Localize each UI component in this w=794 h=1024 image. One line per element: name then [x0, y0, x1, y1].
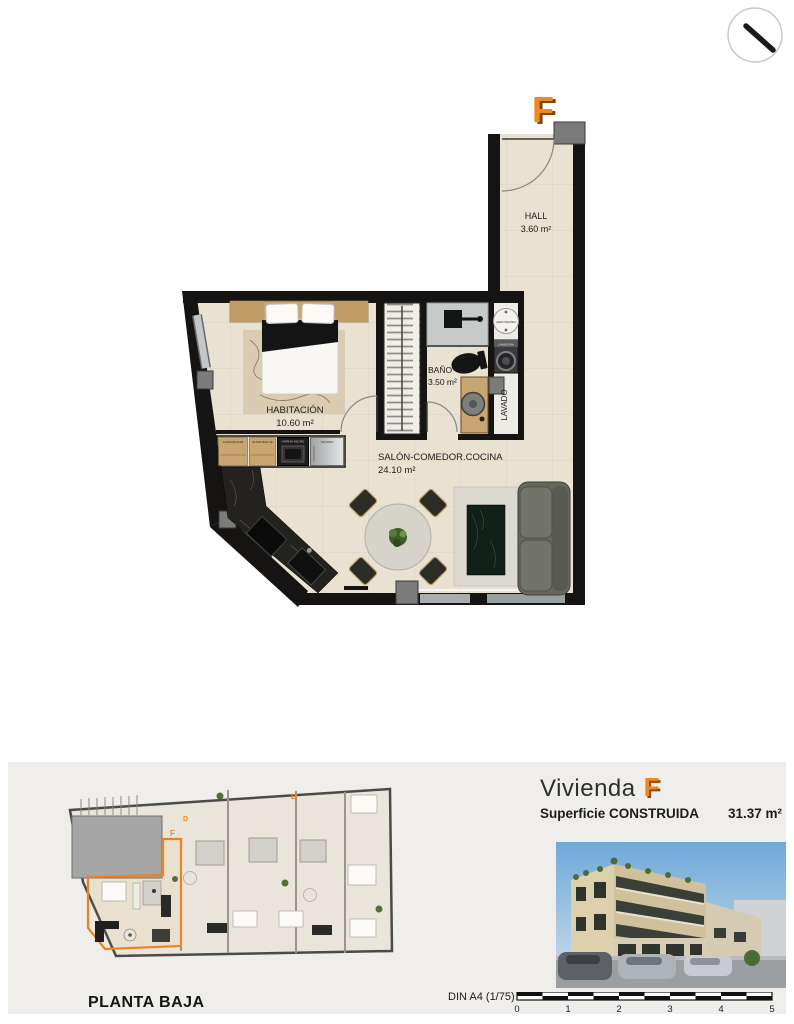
- surface-row: Superficie CONSTRUIDA 31.37 m²: [540, 806, 782, 821]
- site-letter-e: E: [291, 794, 296, 801]
- cabinet-label-1: ALMACENAJE: [223, 440, 244, 444]
- pillow: [266, 303, 299, 323]
- building-photo: [556, 842, 786, 988]
- hall-area: 3.60 m²: [521, 224, 552, 234]
- scale-tick-3: 3: [667, 1004, 672, 1015]
- floor-plan: F F: [0, 0, 794, 760]
- pillow: [302, 303, 335, 323]
- cabinet-label-2: ALMACENAJE: [252, 440, 273, 444]
- scale-tick-4: 4: [718, 1004, 723, 1015]
- hall-name: HALL: [525, 211, 548, 221]
- washer-label: LAVADORA: [498, 342, 514, 346]
- vanity: [461, 377, 488, 433]
- patio: [72, 816, 162, 878]
- unit-badge-letter: F: [532, 89, 554, 130]
- floor-plan-sheet: F F: [0, 0, 794, 760]
- fridge-label: NEVERA: [321, 440, 335, 444]
- bedroom-area: 10.60 m²: [276, 418, 314, 429]
- window-south-1: [420, 594, 470, 603]
- site-plan-title: PLANTA BAJA: [88, 994, 205, 1012]
- scale-bar-segments: [517, 992, 772, 1000]
- scale-tick-0: 0: [514, 1004, 519, 1015]
- dwelling-title: ViviendaF: [540, 772, 660, 803]
- surface-label: Superficie CONSTRUIDA: [540, 806, 699, 821]
- scale-ticks: 0 1 2 3 4 5: [514, 1004, 774, 1015]
- wardrobe: [384, 303, 420, 434]
- living-name: SALÓN-COMEDOR.COCINA: [378, 452, 503, 463]
- dwelling-label: Vivienda: [540, 775, 636, 802]
- scale-tick-2: 2: [616, 1004, 621, 1015]
- scale-bar: 0 1 2 3 4 5: [511, 992, 781, 1018]
- site-letter-f: F: [170, 829, 175, 838]
- dwelling-unit-letter: F: [644, 772, 660, 802]
- laundry-label: LAVADO: [500, 389, 509, 420]
- living-area: 24.10 m²: [378, 465, 416, 476]
- sofa: [518, 482, 570, 595]
- bath-area: 3.50 m²: [428, 377, 457, 387]
- surface-value: 31.37 m²: [728, 806, 782, 821]
- summary-panel: F D E PLANTA BAJA ViviendaF Superficie C…: [8, 762, 786, 1014]
- north-compass-icon: [728, 8, 782, 62]
- coffee-table: [467, 505, 505, 575]
- scale-tick-5: 5: [769, 1004, 774, 1015]
- site-plan: F D E: [57, 783, 417, 983]
- washing-machine: LAVADORA: [494, 340, 518, 373]
- heater-label: AEROTERMIA: [496, 320, 516, 324]
- bedroom-name: HABITACIÓN: [266, 405, 323, 416]
- site-letter-d: D: [183, 816, 188, 823]
- site-cores: [196, 838, 326, 865]
- oven-label: HORNO MICRO: [282, 440, 305, 444]
- unit-badge: F F: [532, 89, 557, 132]
- kitchen-cabinets: ALMACENAJE ALMACENAJE HORNO MICRO NEVERA: [217, 436, 345, 467]
- scale-tick-1: 1: [565, 1004, 570, 1015]
- bath-name: BAÑO: [428, 365, 452, 375]
- scale-label: DIN A4 (1/75): [448, 991, 515, 1003]
